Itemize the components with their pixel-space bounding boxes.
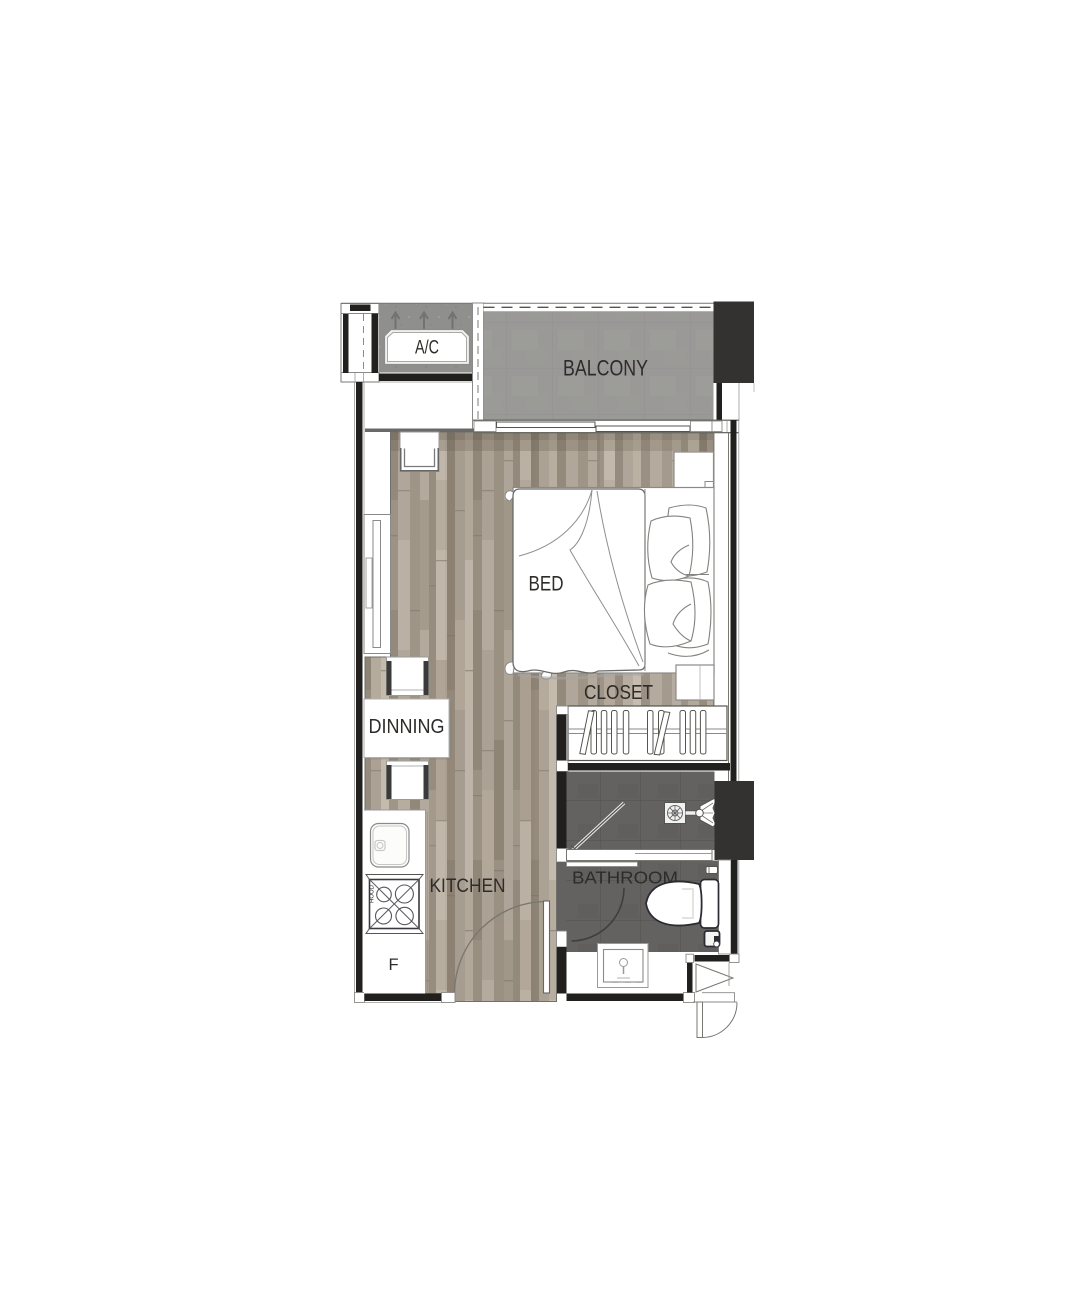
svg-text:BED: BED (529, 572, 564, 596)
svg-text:DINNING: DINNING (369, 715, 445, 738)
svg-text:A/C: A/C (415, 337, 439, 359)
svg-text:KITCHEN: KITCHEN (430, 876, 506, 897)
svg-text:BALCONY: BALCONY (563, 356, 648, 381)
svg-text:HOOD: HOOD (370, 884, 376, 903)
svg-text:CLOSET: CLOSET (584, 681, 653, 704)
svg-text:F: F (388, 956, 398, 974)
